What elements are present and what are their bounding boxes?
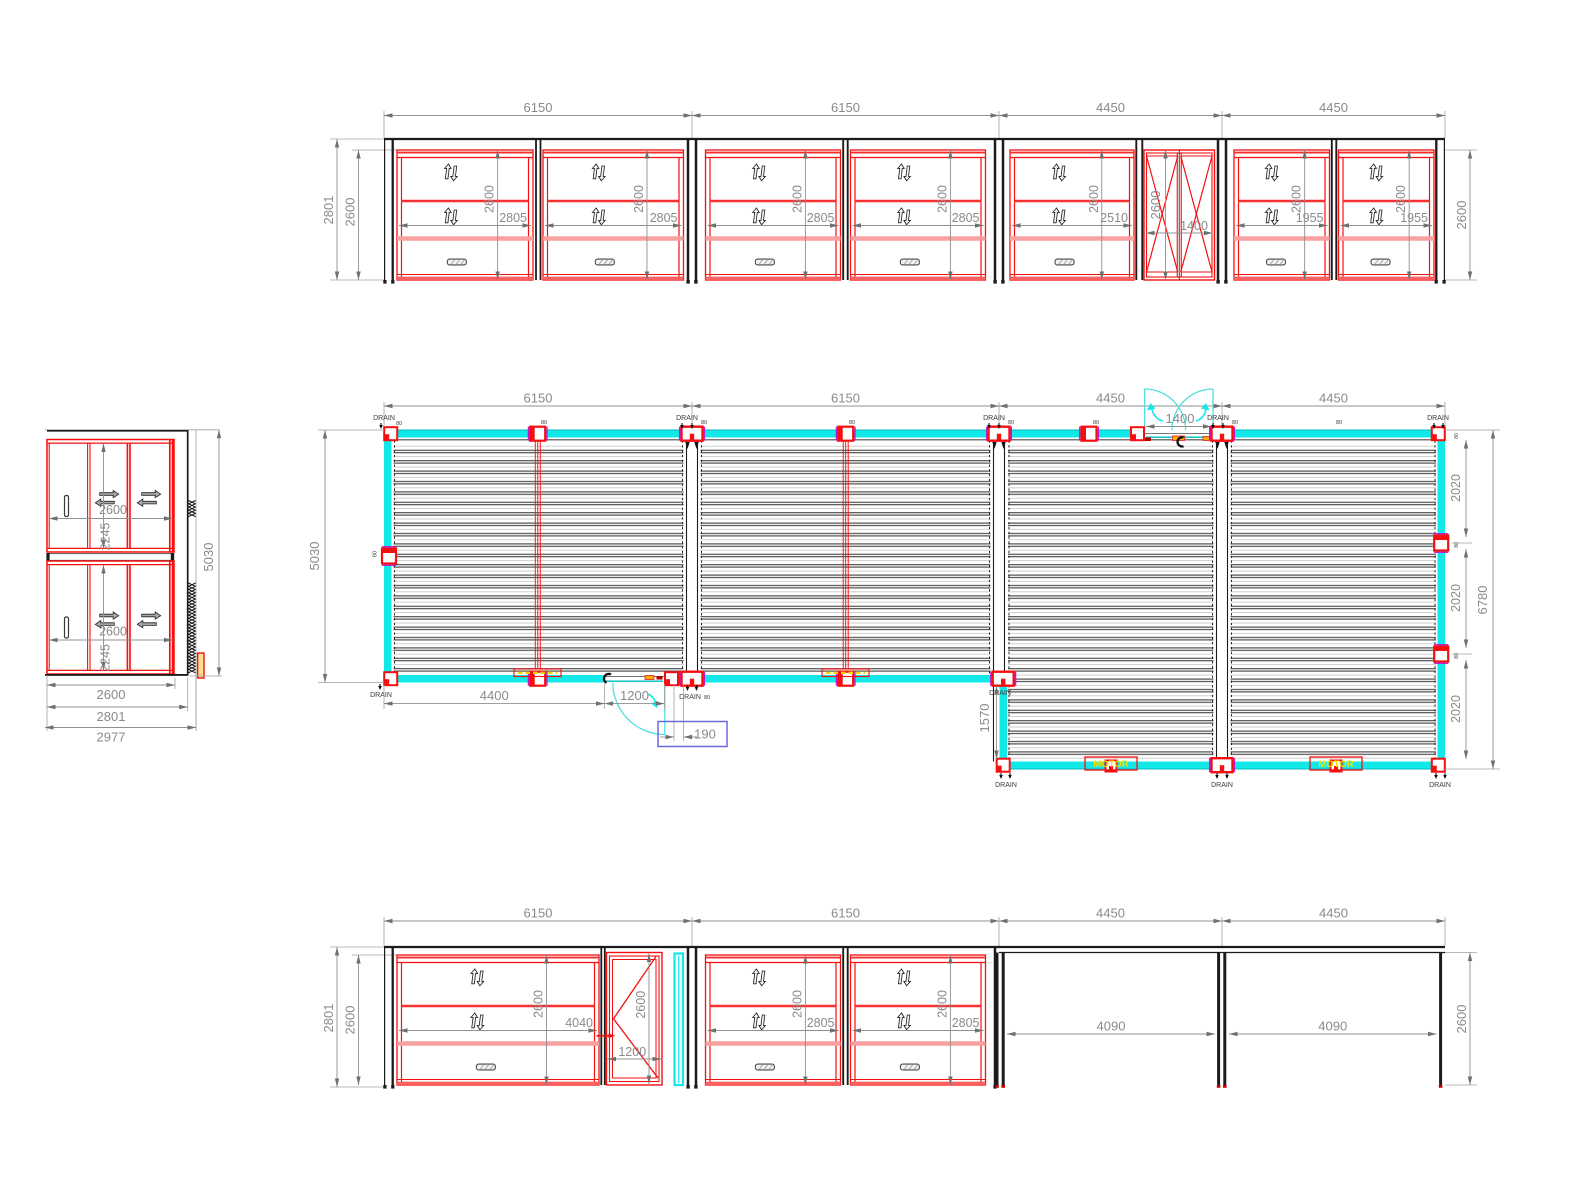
svg-text:2600: 2600: [343, 198, 358, 227]
svg-text:6150: 6150: [524, 391, 553, 406]
svg-text:1200: 1200: [620, 688, 649, 703]
svg-text:4450: 4450: [1319, 906, 1348, 921]
svg-text:2600: 2600: [483, 185, 497, 213]
svg-text:5030: 5030: [307, 542, 322, 571]
svg-text:2805: 2805: [952, 1016, 980, 1030]
svg-text:DRAIN: DRAIN: [679, 694, 701, 701]
svg-text:80: 80: [396, 421, 402, 427]
svg-text:80: 80: [1232, 420, 1238, 426]
svg-text:80: 80: [373, 551, 379, 557]
svg-text:2510: 2510: [1100, 211, 1128, 225]
svg-text:1200: 1200: [618, 1045, 646, 1059]
svg-text:2600: 2600: [1454, 1005, 1469, 1034]
svg-text:DRAIN: DRAIN: [1427, 415, 1449, 422]
svg-text:190: 190: [694, 727, 716, 742]
svg-text:6780: 6780: [1475, 586, 1490, 615]
svg-text:2805: 2805: [499, 211, 527, 225]
svg-text:80: 80: [1454, 433, 1460, 439]
svg-text:MOTOR: MOTOR: [1093, 759, 1128, 770]
svg-text:DRAIN: DRAIN: [676, 415, 698, 422]
svg-text:2805: 2805: [952, 211, 980, 225]
svg-text:4040: 4040: [565, 1016, 593, 1030]
svg-text:6150: 6150: [831, 391, 860, 406]
svg-text:DRAIN: DRAIN: [983, 415, 1005, 422]
svg-text:80: 80: [1454, 542, 1460, 548]
svg-text:2805: 2805: [807, 211, 835, 225]
svg-text:2600: 2600: [935, 990, 949, 1018]
svg-text:1400: 1400: [1180, 219, 1208, 233]
svg-text:4450: 4450: [1319, 391, 1348, 406]
svg-text:2245: 2245: [99, 523, 113, 551]
svg-text:2600: 2600: [531, 990, 545, 1018]
svg-text:2801: 2801: [97, 709, 126, 724]
svg-text:2600: 2600: [343, 1006, 358, 1035]
svg-text:2977: 2977: [97, 730, 126, 745]
svg-text:2600: 2600: [1394, 185, 1408, 213]
svg-text:2600: 2600: [632, 185, 646, 213]
svg-text:DRAIN: DRAIN: [989, 690, 1011, 697]
svg-text:5030: 5030: [201, 543, 216, 572]
svg-text:DRAIN: DRAIN: [1211, 782, 1233, 789]
svg-text:2600: 2600: [935, 185, 949, 213]
svg-text:80: 80: [701, 420, 707, 426]
svg-text:2801: 2801: [321, 1004, 336, 1033]
svg-text:80: 80: [1008, 420, 1014, 426]
svg-text:DRAIN: DRAIN: [1429, 782, 1451, 789]
svg-text:6150: 6150: [831, 906, 860, 921]
svg-text:2600: 2600: [634, 991, 648, 1019]
svg-text:2600: 2600: [1087, 185, 1101, 213]
svg-text:2600: 2600: [790, 185, 804, 213]
svg-text:80: 80: [541, 420, 547, 426]
svg-text:2020: 2020: [1449, 695, 1463, 723]
svg-text:80: 80: [1336, 420, 1342, 426]
svg-text:2801: 2801: [321, 196, 336, 225]
svg-text:2020: 2020: [1449, 474, 1463, 502]
svg-text:4450: 4450: [1096, 906, 1125, 921]
svg-text:80: 80: [704, 695, 710, 701]
svg-text:DRAIN: DRAIN: [995, 782, 1017, 789]
svg-text:2600: 2600: [1454, 201, 1469, 230]
svg-text:2600: 2600: [1148, 191, 1163, 220]
svg-text:MOTOR: MOTOR: [1318, 759, 1353, 770]
svg-text:4450: 4450: [1319, 100, 1348, 115]
svg-text:2600: 2600: [97, 687, 126, 702]
svg-text:2600: 2600: [790, 990, 804, 1018]
svg-text:DRAIN: DRAIN: [370, 692, 392, 699]
svg-text:2245: 2245: [99, 644, 113, 672]
svg-text:80: 80: [1454, 653, 1460, 659]
svg-text:80: 80: [1093, 420, 1099, 426]
svg-text:2600: 2600: [1290, 185, 1304, 213]
svg-text:4090: 4090: [1097, 1019, 1126, 1034]
svg-text:6150: 6150: [831, 100, 860, 115]
svg-text:2020: 2020: [1449, 584, 1463, 612]
svg-text:2805: 2805: [807, 1016, 835, 1030]
svg-text:80: 80: [849, 420, 855, 426]
svg-text:6150: 6150: [524, 100, 553, 115]
svg-text:4090: 4090: [1318, 1019, 1347, 1034]
svg-text:1400: 1400: [1166, 411, 1195, 426]
svg-text:6150: 6150: [524, 906, 553, 921]
svg-text:DRAIN: DRAIN: [373, 415, 395, 422]
svg-text:1570: 1570: [977, 704, 992, 733]
svg-text:4450: 4450: [1096, 391, 1125, 406]
svg-text:2805: 2805: [650, 211, 678, 225]
svg-text:DRAIN: DRAIN: [1207, 415, 1229, 422]
svg-text:4400: 4400: [480, 688, 509, 703]
svg-text:4450: 4450: [1096, 100, 1125, 115]
